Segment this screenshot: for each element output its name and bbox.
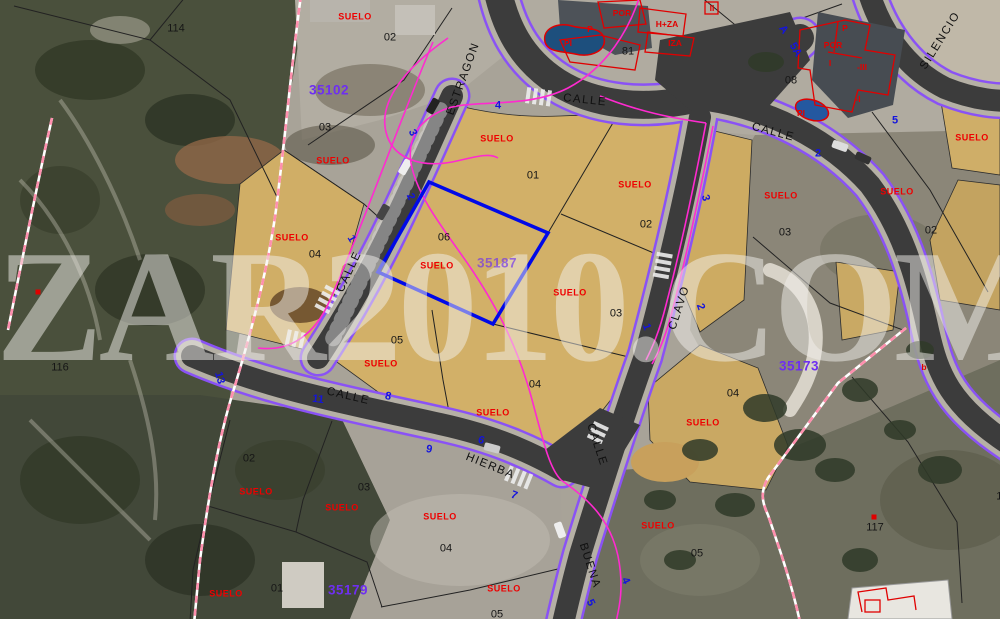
parcel-number: 03 <box>319 123 331 134</box>
cadastral-map-viewport[interactable]: ZAR2010.COM SUELOSUELOSUELOSUELOSUELOSUE… <box>0 0 1000 619</box>
parcel-number: 06 <box>438 233 450 244</box>
suelo-label: SUELO <box>618 181 652 190</box>
building-label: -I <box>855 95 860 104</box>
parcel-number: 114 <box>167 24 185 35</box>
parcel-number: 01 <box>271 584 283 595</box>
parcel-number: 05 <box>491 610 503 619</box>
building-label: P <box>587 25 593 34</box>
street-number: 5 <box>892 116 898 127</box>
building-label: b <box>921 363 926 372</box>
street-number: 2 <box>815 149 821 160</box>
parcel-number: 01 <box>527 171 539 182</box>
suelo-label: SUELO <box>480 135 514 144</box>
parcel-number: 03 <box>358 483 370 494</box>
parcel-number: 03 <box>779 228 791 239</box>
building-label: II <box>710 4 715 13</box>
ref-code: 35173 <box>779 359 819 373</box>
building-label: PI <box>797 109 805 118</box>
parcel-number: 08 <box>785 76 797 87</box>
parcel-number: 02 <box>640 220 652 231</box>
suelo-label: SUELO <box>553 289 587 298</box>
parcel-number: 03 <box>610 309 622 320</box>
parcel-number: 04 <box>727 389 739 400</box>
parcel-number: 05 <box>691 549 703 560</box>
suelo-label: SUELO <box>686 419 720 428</box>
suelo-label: SUELO <box>325 504 359 513</box>
parcel-number: 02 <box>243 454 255 465</box>
building-label: I <box>829 59 831 68</box>
suelo-label: SUELO <box>487 585 521 594</box>
building-label: POR <box>824 41 842 50</box>
suelo-label: SUELO <box>364 360 398 369</box>
building-label: IZA <box>668 39 682 48</box>
parcel-number: 04 <box>529 380 541 391</box>
parcel-number: 81 <box>622 47 634 58</box>
parcel-number: 118 <box>996 492 1000 503</box>
building-label: PI <box>564 39 572 48</box>
parcel-number: 02 <box>925 226 937 237</box>
parcel-number: 116 <box>51 363 69 374</box>
suelo-label: SUELO <box>338 13 372 22</box>
ref-code: 35179 <box>328 583 368 597</box>
building-label: POR <box>613 9 631 18</box>
building-label: -III <box>857 63 867 72</box>
watermark: ZAR2010.COM <box>0 214 1000 399</box>
marker <box>872 515 877 520</box>
suelo-label: SUELO <box>955 134 989 143</box>
ref-code: 35187 <box>477 256 517 270</box>
parcel-number: 05 <box>391 336 403 347</box>
suelo-label: SUELO <box>880 188 914 197</box>
suelo-label: SUELO <box>641 522 675 531</box>
marker <box>36 290 41 295</box>
building-label: P <box>842 24 848 33</box>
street-number: 4 <box>495 101 501 112</box>
suelo-label: SUELO <box>209 590 243 599</box>
suelo-label: SUELO <box>423 513 457 522</box>
parcel-number: 117 <box>866 523 884 534</box>
building-label: H+ZA <box>656 20 678 29</box>
parcel-number: 04 <box>309 250 321 261</box>
ref-code: 35102 <box>309 83 349 97</box>
suelo-label: SUELO <box>275 234 309 243</box>
parcel-number: 04 <box>440 544 452 555</box>
street-number: 11 <box>311 394 324 407</box>
parcel-number: 02 <box>384 33 396 44</box>
suelo-label: SUELO <box>476 409 510 418</box>
suelo-label: SUELO <box>420 262 454 271</box>
suelo-label: SUELO <box>764 192 798 201</box>
suelo-label: SUELO <box>239 488 273 497</box>
suelo-label: SUELO <box>316 157 350 166</box>
